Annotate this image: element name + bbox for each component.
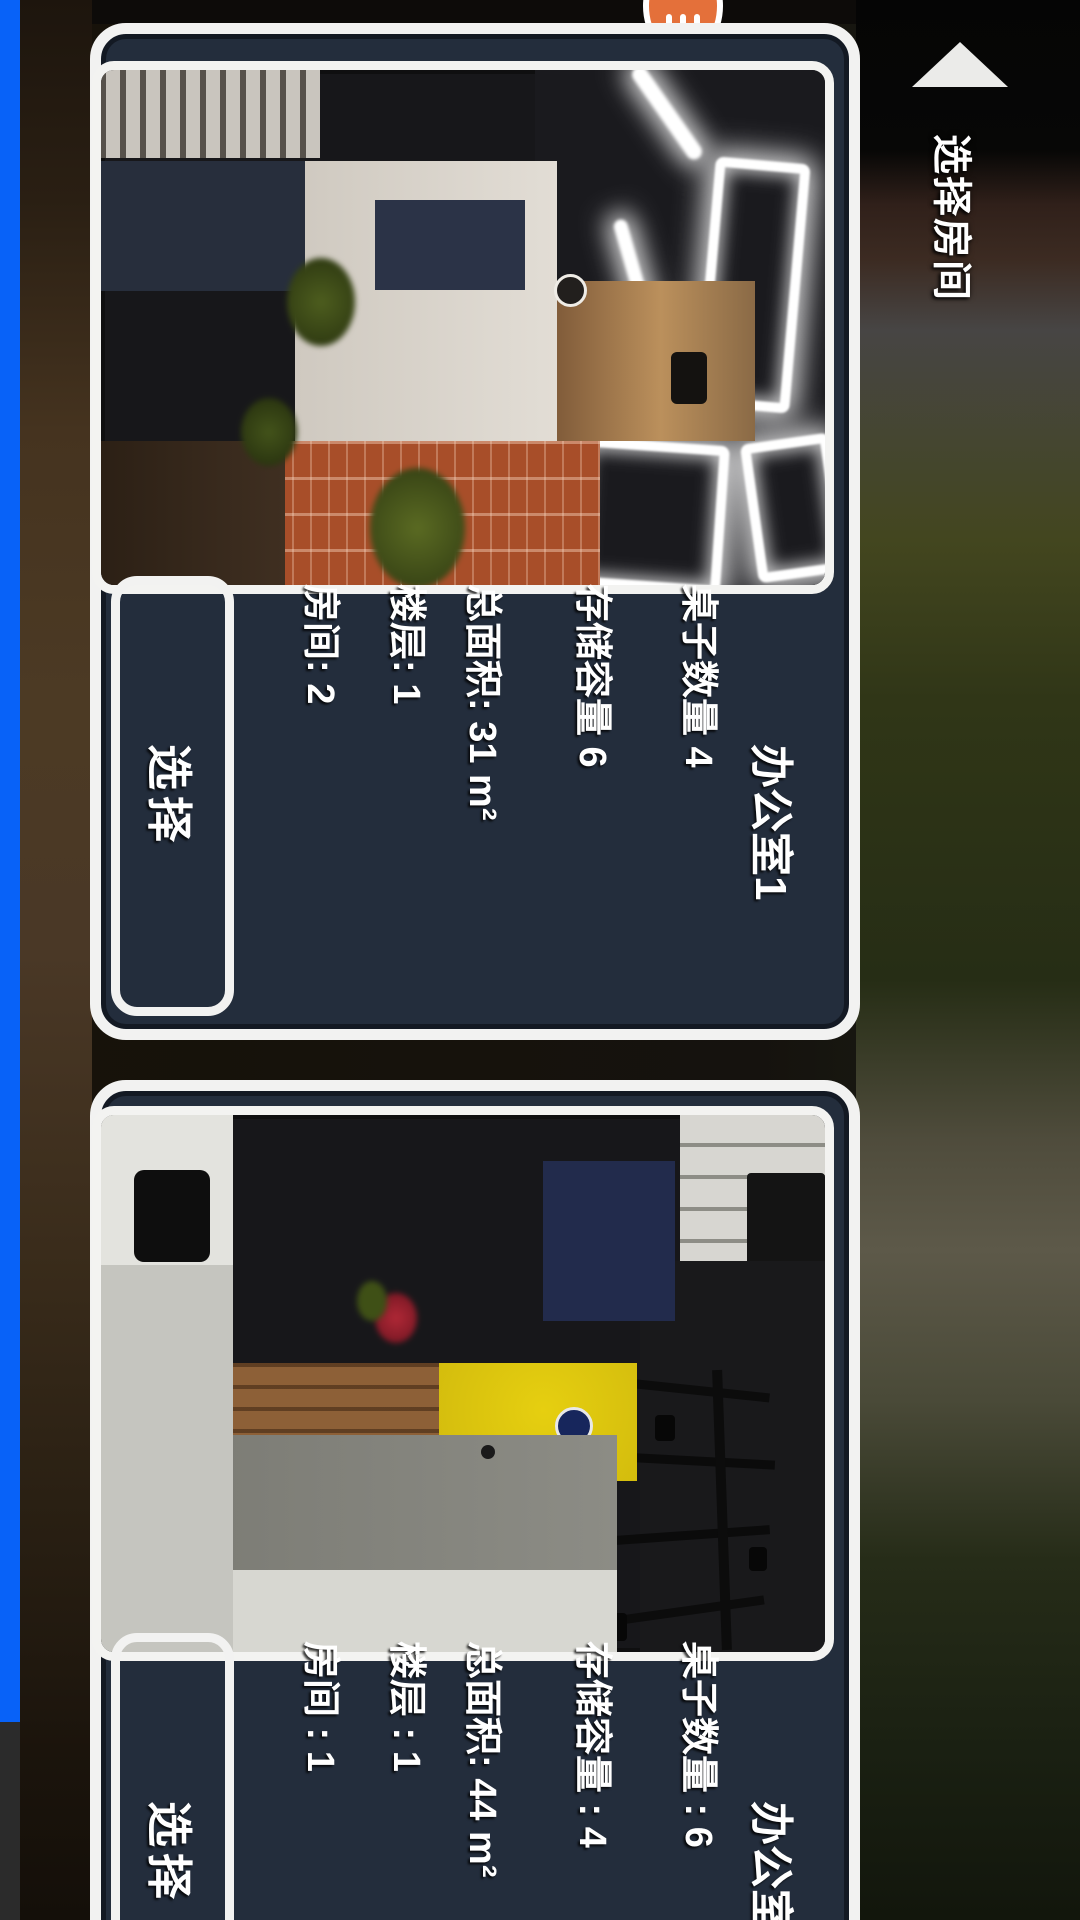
progress-bar [0, 0, 20, 1920]
background-blurred-scene-bottom [18, 0, 92, 1920]
window-dark [101, 161, 305, 291]
select-button[interactable]: 选择 [111, 1633, 234, 1920]
stat-rooms: 房间 : 1 [292, 1641, 348, 1772]
floor-dot [481, 1445, 495, 1459]
dark-screen [543, 1161, 675, 1321]
room-title: 办公室 [743, 1801, 807, 1920]
select-button-label: 选择 [140, 744, 206, 848]
plant [357, 1281, 387, 1321]
select-button-label: 选择 [140, 1801, 206, 1905]
stat-total-area: 总面积: 44 m² [454, 1641, 510, 1877]
wall-clock [554, 274, 587, 307]
room-photo-office2 [92, 1106, 834, 1661]
white-table-edge [225, 1570, 617, 1652]
counter-lamp [671, 352, 707, 404]
speaker [749, 1547, 767, 1571]
plant [370, 468, 465, 588]
stat-total-area: 总面积: 31 m² [454, 584, 510, 820]
plant [287, 258, 355, 346]
stat-desk-count: 桌子数量 : 6 [670, 1641, 726, 1848]
room-photo-office1 [92, 61, 834, 594]
stat-rooms: 房间: 2 [292, 584, 348, 704]
room-title: 办公室1 [743, 744, 807, 900]
plant [241, 398, 297, 466]
window-dark [375, 200, 525, 290]
select-button[interactable]: 选择 [111, 576, 234, 1016]
ceiling-slats [101, 70, 320, 158]
room-card-office1[interactable]: 办公室1 桌子数量 4 存储容量 6 总面积: 31 m² 楼层: 1 房间: … [90, 23, 860, 1040]
stat-floor: 楼层: 1 [378, 584, 434, 704]
black-chair [134, 1170, 210, 1262]
stat-storage-capacity: 存储容量 : 4 [564, 1641, 620, 1848]
progress-bar-fill [0, 0, 20, 1722]
phone-screen: 选择房间 [0, 0, 1080, 1920]
room-card-office2[interactable]: 办公室 桌子数量 : 6 存储容量 : 4 总面积: 44 m² 楼层 : 1 … [90, 1080, 860, 1920]
stat-storage-capacity: 存储容量 6 [564, 584, 620, 768]
speaker [655, 1415, 675, 1441]
stat-floor: 楼层 : 1 [378, 1641, 434, 1772]
page-title: 选择房间 [926, 134, 984, 302]
stat-desk-count: 桌子数量 4 [670, 584, 726, 768]
game-landscape-stage: 选择房间 [0, 0, 1080, 1920]
